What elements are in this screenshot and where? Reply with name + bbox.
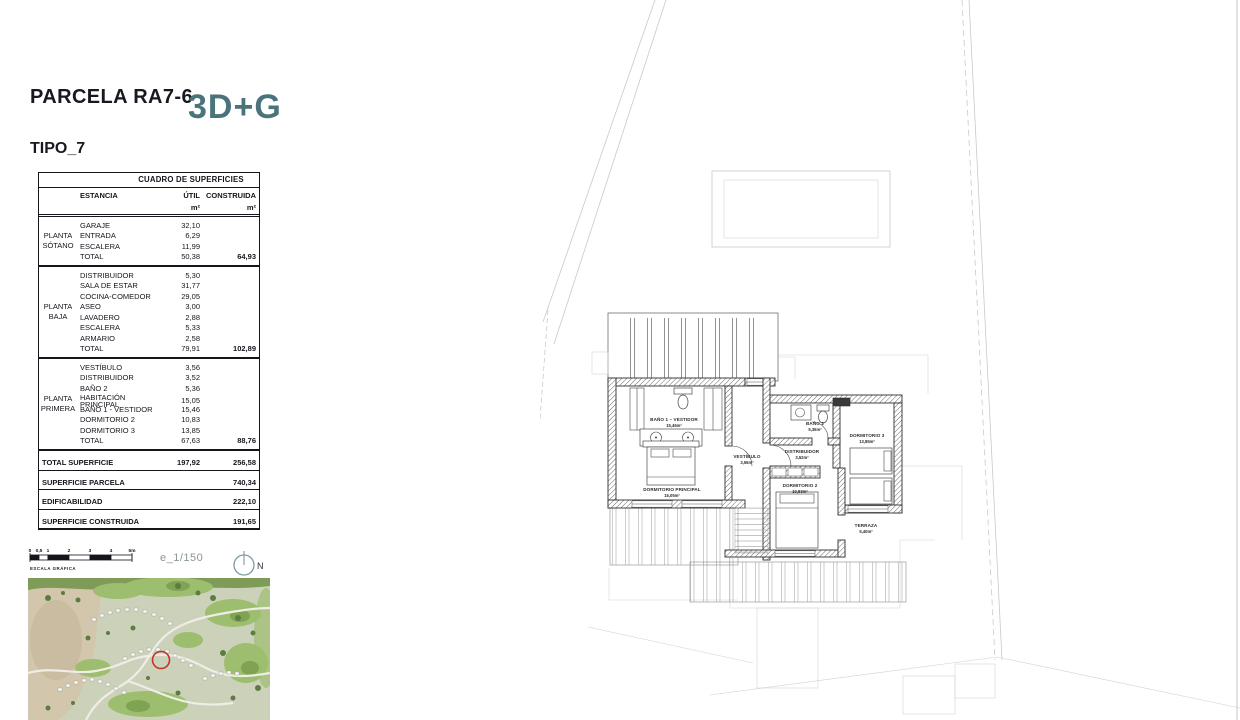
summary-util: 197,92 (165, 459, 203, 467)
north-arrow-icon: N (229, 548, 271, 582)
table-row: SALA DE ESTAR31,77 (77, 281, 259, 292)
cell-estancia: ESCALERA (77, 243, 165, 251)
section-rows: DISTRIBUIDOR5,30 SALA DE ESTAR31,77 COCI… (77, 270, 259, 354)
summary-superficie-parcela: SUPERFICIE PARCELA740,34 (39, 476, 259, 491)
room-name: BAÑO 1 – VESTIDOR (650, 416, 698, 422)
room-name: DORMITORIO 3 (850, 433, 885, 438)
table-row: BAÑO 25,36 (77, 383, 259, 394)
table-row: ASEO3,00 (77, 302, 259, 313)
cell-estancia: ESCALERA (77, 324, 165, 332)
floor-label: PLANTA BAJA (39, 270, 77, 354)
cell-util: 3,56 (165, 364, 203, 372)
site-map (28, 578, 270, 720)
table-row: DISTRIBUIDOR3,52 (77, 373, 259, 384)
table-row: ESCALERA5,33 (77, 323, 259, 334)
table-row: VESTÍBULO3,56 (77, 362, 259, 373)
cell-util: 6,29 (165, 232, 203, 240)
table-row: ARMARIO2,58 (77, 333, 259, 344)
scale-ratio: e_1/150 (160, 552, 203, 564)
cell-estancia: TOTAL (77, 253, 165, 261)
cell-estancia: DORMITORIO 2 (77, 416, 165, 424)
scale-caption: ESCALA GRÁFICA (30, 566, 76, 571)
header-floor-col (39, 192, 77, 211)
section-planta-baja: PLANTA BAJA DISTRIBUIDOR5,30 SALA DE EST… (39, 265, 259, 357)
cell-estancia: BAÑO 1 - VESTIDOR (77, 406, 165, 414)
table-row-total: TOTAL67,6388,76 (77, 436, 259, 447)
floor-plan: BAÑO 1 – VESTIDOR 15,46m² DORMITORIO PRI… (540, 0, 1240, 720)
map-terrain-blob (30, 600, 82, 680)
cell-util: 13,85 (165, 427, 203, 435)
cell-util: 5,33 (165, 324, 203, 332)
cell-util: 2,88 (165, 314, 203, 322)
cell-util: 50,38 (165, 253, 203, 261)
section-rows: GARAJE32,10 ENTRADA6,29 ESCALERA11,99 TO… (77, 220, 259, 262)
cell-util: 79,91 (165, 345, 203, 353)
cell-util: 2,58 (165, 335, 203, 343)
room-area: 5,36m² (808, 427, 822, 432)
summary-label: SUPERFICIE CONSTRUIDA (39, 518, 165, 526)
summary-construida: 740,34 (203, 479, 259, 487)
scale-bar-segments (30, 553, 132, 562)
cell-estancia: COCINA-COMEDOR (77, 293, 165, 301)
surface-table: CUADRO DE SUPERFICIES ESTANCIA ÚTIL m² C… (38, 172, 260, 530)
cell-util: 3,00 (165, 303, 203, 311)
table-header: ESTANCIA ÚTIL m² CONSTRUIDA m² (39, 188, 259, 217)
summary-label: TOTAL SUPERFICIE (39, 459, 165, 467)
summary-construida: 222,10 (203, 498, 259, 506)
room-name: BAÑO 2 (806, 420, 824, 426)
cell-util: 32,10 (165, 222, 203, 230)
table-sections: PLANTA SÓTANO GARAJE32,10 ENTRADA6,29 ES… (39, 217, 259, 451)
cell-util: 5,36 (165, 385, 203, 393)
summary-total-superficie: TOTAL SUPERFICIE197,92256,58 (39, 456, 259, 471)
header-util-unit: m² (163, 204, 200, 212)
header-construida-unit: m² (203, 204, 256, 212)
room-area: 13,85m² (859, 439, 875, 444)
table-row: BAÑO 1 - VESTIDOR15,46 (77, 404, 259, 415)
cell-estancia: DISTRIBUIDOR (77, 374, 165, 382)
cell-util: 11,99 (165, 243, 203, 251)
brand-logo: 3D+G (188, 88, 282, 127)
pool (712, 171, 890, 247)
header-estancia: ESTANCIA (77, 192, 163, 211)
cell-estancia: BAÑO 2 (77, 385, 165, 393)
cell-estancia: GARAJE (77, 222, 165, 230)
room-area: 15,05m² (664, 493, 680, 498)
cell-estancia: ASEO (77, 303, 165, 311)
cell-estancia: TOTAL (77, 345, 165, 353)
scale-tick: 0,5 (36, 548, 43, 554)
scale-tick: 2 (68, 548, 71, 554)
header-util: ÚTIL m² (163, 192, 203, 211)
cell-util: 10,83 (165, 416, 203, 424)
table-row: ENTRADA6,29 (77, 231, 259, 242)
summary-label: EDIFICABILIDAD (39, 498, 165, 506)
cell-estancia: TOTAL (77, 437, 165, 445)
cell-estancia: ARMARIO (77, 335, 165, 343)
room-name: DORMITORIO PRINCIPAL (643, 487, 701, 492)
header-util-label: ÚTIL (183, 191, 200, 200)
room-name: VESTÍBULO (733, 452, 761, 459)
room-area: 3,56m² (740, 460, 754, 465)
cell-estancia: SALA DE ESTAR (77, 282, 165, 290)
table-title: CUADRO DE SUPERFICIES (39, 173, 259, 188)
stairs (735, 508, 768, 553)
table-row: GARAJE32,10 (77, 220, 259, 231)
cell-util: 15,46 (165, 406, 203, 414)
summary-superficie-construida: SUPERFICIE CONSTRUIDA191,65 (39, 515, 259, 530)
north-label: N (257, 561, 264, 571)
cell-util: 67,63 (165, 437, 203, 445)
cell-util: 3,52 (165, 374, 203, 382)
room-name: DISTRIBUIDOR (785, 449, 820, 454)
tipo-title: TIPO_7 (30, 140, 85, 158)
summary-construida: 256,58 (203, 459, 259, 467)
table-row: DORMITORIO 210,83 (77, 415, 259, 426)
scale-bar-graphic: 0 0,5 1 2 3 4 5m ESCALA GRÁFICA (26, 546, 146, 580)
room-area: 3,52m² (795, 455, 809, 460)
cell-util: 15,05 (165, 397, 203, 405)
summary-construida: 191,65 (203, 518, 259, 526)
section-planta-sotano: PLANTA SÓTANO GARAJE32,10 ENTRADA6,29 ES… (39, 217, 259, 265)
table-row: LAVADERO2,88 (77, 312, 259, 323)
header-construida-label: CONSTRUIDA (206, 191, 256, 200)
cell-util: 29,05 (165, 293, 203, 301)
scale-tick: 1 (47, 548, 50, 554)
room-area: 5,40m² (859, 529, 873, 534)
floor-label: PLANTA SÓTANO (39, 220, 77, 262)
pergola (592, 313, 795, 381)
cell-construida: 102,89 (203, 345, 259, 353)
cell-construida: 64,93 (203, 253, 259, 261)
summary-edificabilidad: EDIFICABILIDAD222,10 (39, 495, 259, 510)
table-row: DORMITORIO 313,85 (77, 425, 259, 436)
table-row-total: TOTAL79,91102,89 (77, 344, 259, 355)
table-row: COCINA-COMEDOR29,05 (77, 291, 259, 302)
room-name: TERRAZA (855, 523, 878, 528)
table-row: ESCALERA11,99 (77, 241, 259, 252)
cell-estancia: DORMITORIO 3 (77, 427, 165, 435)
cell-construida: 88,76 (203, 437, 259, 445)
cell-util: 31,77 (165, 282, 203, 290)
summary-label: SUPERFICIE PARCELA (39, 479, 165, 487)
parcel-title: PARCELA RA7-6 (30, 86, 193, 109)
room-area: 15,46m² (666, 423, 682, 428)
section-rows: VESTÍBULO3,56 DISTRIBUIDOR3,52 BAÑO 25,3… (77, 362, 259, 446)
table-row-total: TOTAL50,3864,93 (77, 252, 259, 263)
cell-estancia: DISTRIBUIDOR (77, 272, 165, 280)
room-name: DORMITORIO 2 (783, 483, 818, 488)
plan-sheet: PARCELA RA7-6 3D+G TIPO_7 CUADRO DE SUPE… (0, 0, 1240, 720)
table-row: HABITACIÓN PRINCIPAL15,05 (77, 394, 259, 405)
floor-label: PLANTA PRIMERA (39, 362, 77, 446)
cell-util: 5,30 (165, 272, 203, 280)
cell-estancia: LAVADERO (77, 314, 165, 322)
cell-estancia: VESTÍBULO (77, 364, 165, 372)
table-row: DISTRIBUIDOR5,30 (77, 270, 259, 281)
scale-tick: 3 (89, 548, 92, 554)
scale-tick: 4 (110, 548, 113, 554)
room-area: 10,83m² (792, 489, 808, 494)
section-planta-primera: PLANTA PRIMERA VESTÍBULO3,56 DISTRIBUIDO… (39, 357, 259, 449)
cell-estancia: ENTRADA (77, 232, 165, 240)
header-construida: CONSTRUIDA m² (203, 192, 259, 211)
